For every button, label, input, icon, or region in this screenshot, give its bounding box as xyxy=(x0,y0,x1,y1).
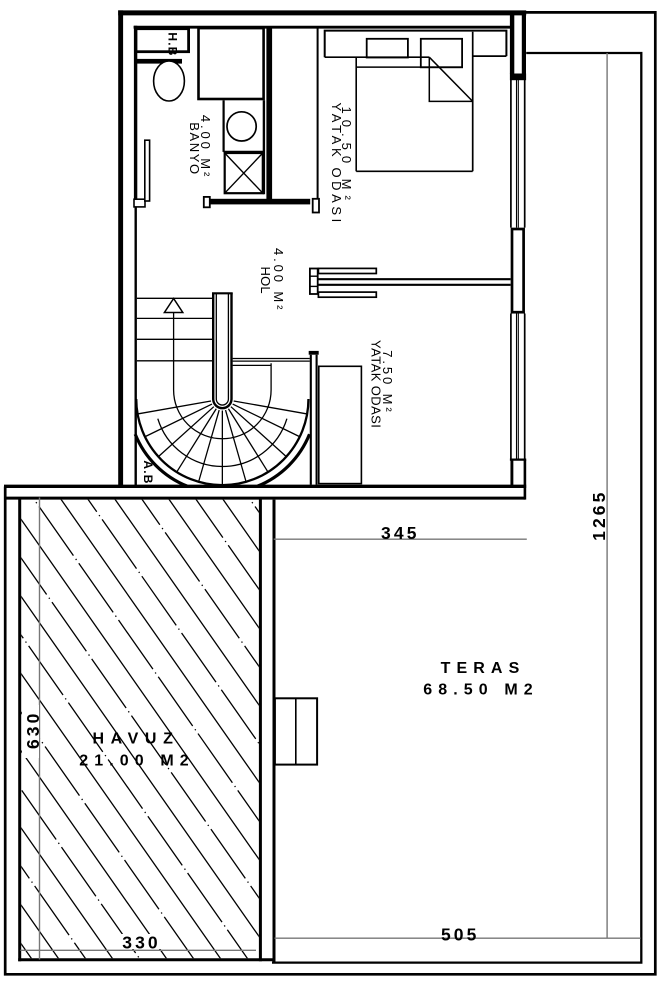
svg-text:TERAS: TERAS xyxy=(441,660,526,677)
svg-text:330: 330 xyxy=(122,932,161,952)
svg-text:1265: 1265 xyxy=(589,490,609,541)
svg-text:505: 505 xyxy=(441,924,480,944)
svg-text:H.B: H.B xyxy=(166,32,180,56)
svg-text:21.00 M2: 21.00 M2 xyxy=(79,753,195,770)
svg-text:630: 630 xyxy=(23,711,43,750)
svg-text:68.50 M2: 68.50 M2 xyxy=(423,682,539,699)
svg-text:4.00 M²BANYO: 4.00 M²BANYO xyxy=(187,115,213,179)
svg-text:345: 345 xyxy=(381,523,420,543)
svg-text:A.B: A.B xyxy=(141,460,155,484)
svg-text:HAVUZ: HAVUZ xyxy=(93,730,180,747)
